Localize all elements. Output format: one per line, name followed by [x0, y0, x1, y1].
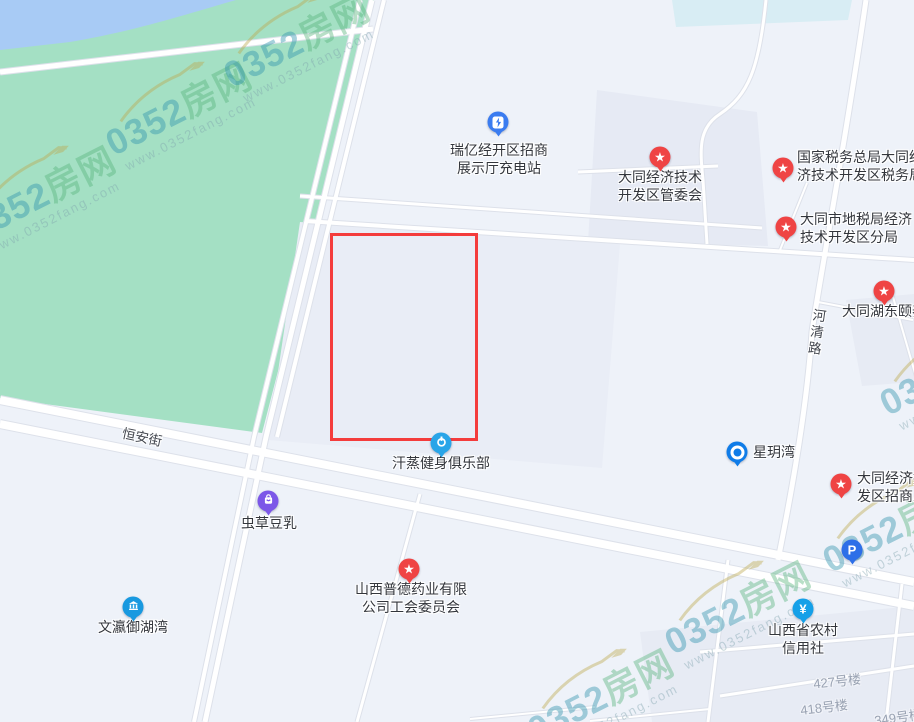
map-viewport[interactable]: 0352房网 www.0352fang.com 0352房网 www.0352f… [0, 0, 914, 722]
poi-pin-sauna-club[interactable] [431, 433, 452, 454]
poi-pin-wenying-yuhuwan[interactable] [123, 597, 144, 618]
power-icon [435, 434, 447, 452]
charging-icon [493, 116, 504, 128]
star-icon: ★ [777, 161, 789, 174]
parking-icon: P [848, 544, 857, 557]
dot-ring-icon [730, 445, 744, 459]
yuan-icon: ¥ [799, 603, 806, 616]
star-icon: ★ [654, 150, 666, 163]
star-icon: ★ [780, 220, 792, 233]
poi-label-pharma-union[interactable]: 山西普德药业有限公司工会委员会 [355, 580, 467, 616]
poi-label-charging-station[interactable]: 瑞亿经开区招商展示厅充电站 [450, 141, 548, 177]
poi-label-investment-bureau[interactable]: 大同经济技发区招商总 [857, 469, 914, 505]
poi-label-soy-milk[interactable]: 虫草豆乳 [241, 514, 297, 532]
poi-pin-xingyuewan[interactable] [727, 442, 748, 463]
poi-label-nursing-home[interactable]: 大同湖东颐养 [842, 302, 914, 320]
star-icon: ★ [403, 562, 415, 575]
star-icon: ★ [835, 477, 847, 490]
poi-pin-management-committee[interactable]: ★ [650, 147, 671, 168]
poi-label-local-tax[interactable]: 大同市地税局经济技术开发区分局 [800, 210, 912, 246]
poi-pin-nursing-home[interactable]: ★ [874, 281, 895, 302]
poi-label-xingyuewan[interactable]: 星玥湾 [753, 443, 795, 461]
poi-pin-parking[interactable]: P [842, 540, 863, 561]
poi-pin-national-tax[interactable]: ★ [773, 158, 794, 179]
poi-label-rural-credit[interactable]: 山西省农村信用社 [768, 621, 838, 657]
poi-label-management-committee[interactable]: 大同经济技术开发区管委会 [618, 168, 702, 204]
poi-pin-soy-milk[interactable] [258, 491, 279, 512]
poi-pin-pharma-union[interactable]: ★ [399, 559, 420, 580]
shopping-bag-icon [262, 492, 274, 510]
poi-pin-local-tax[interactable]: ★ [776, 217, 797, 238]
poi-pin-investment-bureau[interactable]: ★ [831, 474, 852, 495]
poi-label-national-tax[interactable]: 国家税务总局大同经济技术开发区税务局 [797, 148, 914, 184]
highlight-plot-rectangle [330, 233, 478, 441]
poi-pin-charging-station[interactable] [488, 112, 509, 133]
star-icon: ★ [878, 284, 890, 297]
poi-pin-rural-credit[interactable]: ¥ [793, 599, 814, 620]
bank-building-icon [127, 598, 139, 616]
